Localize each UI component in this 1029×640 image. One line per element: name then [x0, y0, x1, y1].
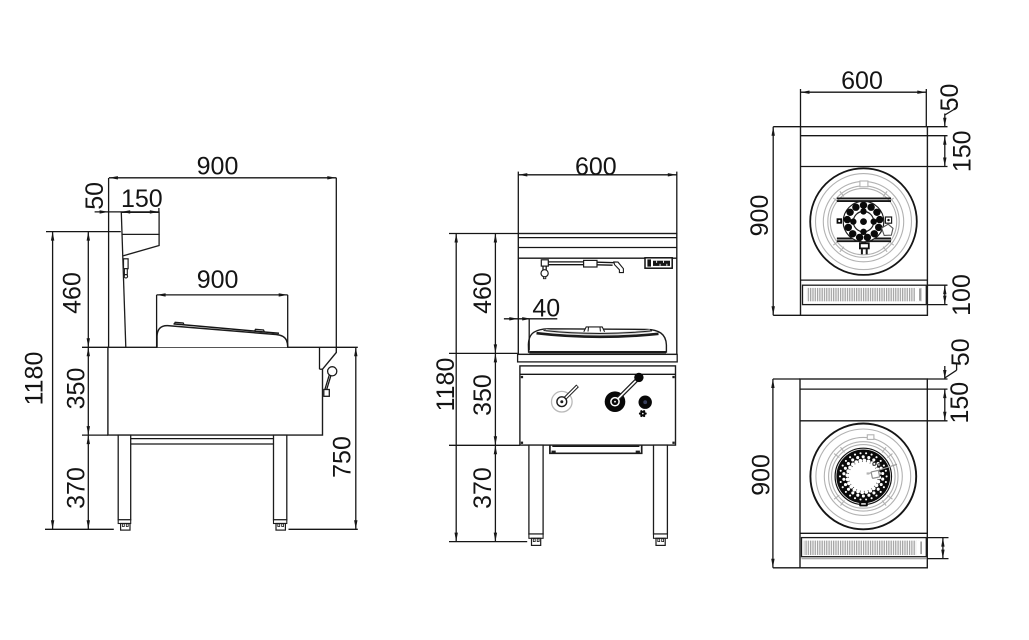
svg-text:40: 40	[532, 295, 560, 323]
svg-text:1180: 1180	[20, 352, 48, 406]
svg-text:50: 50	[947, 338, 975, 366]
svg-text:900: 900	[197, 266, 239, 294]
svg-text:600: 600	[841, 67, 883, 95]
svg-text:900: 900	[746, 195, 774, 237]
svg-text:600: 600	[575, 153, 617, 181]
svg-text:50: 50	[81, 182, 109, 210]
svg-text:50: 50	[936, 84, 964, 112]
svg-text:350: 350	[63, 368, 91, 410]
svg-text:750: 750	[329, 436, 357, 478]
svg-text:150: 150	[121, 185, 163, 213]
svg-text:900: 900	[748, 454, 776, 496]
svg-text:460: 460	[469, 272, 497, 314]
svg-text:100: 100	[948, 274, 976, 316]
svg-text:370: 370	[469, 467, 497, 509]
svg-text:370: 370	[63, 467, 91, 509]
svg-text:350: 350	[469, 374, 497, 416]
svg-text:1180: 1180	[432, 358, 460, 412]
svg-text:900: 900	[197, 152, 239, 180]
svg-text:150: 150	[946, 382, 974, 424]
svg-text:150: 150	[948, 130, 976, 172]
svg-text:460: 460	[58, 272, 86, 314]
